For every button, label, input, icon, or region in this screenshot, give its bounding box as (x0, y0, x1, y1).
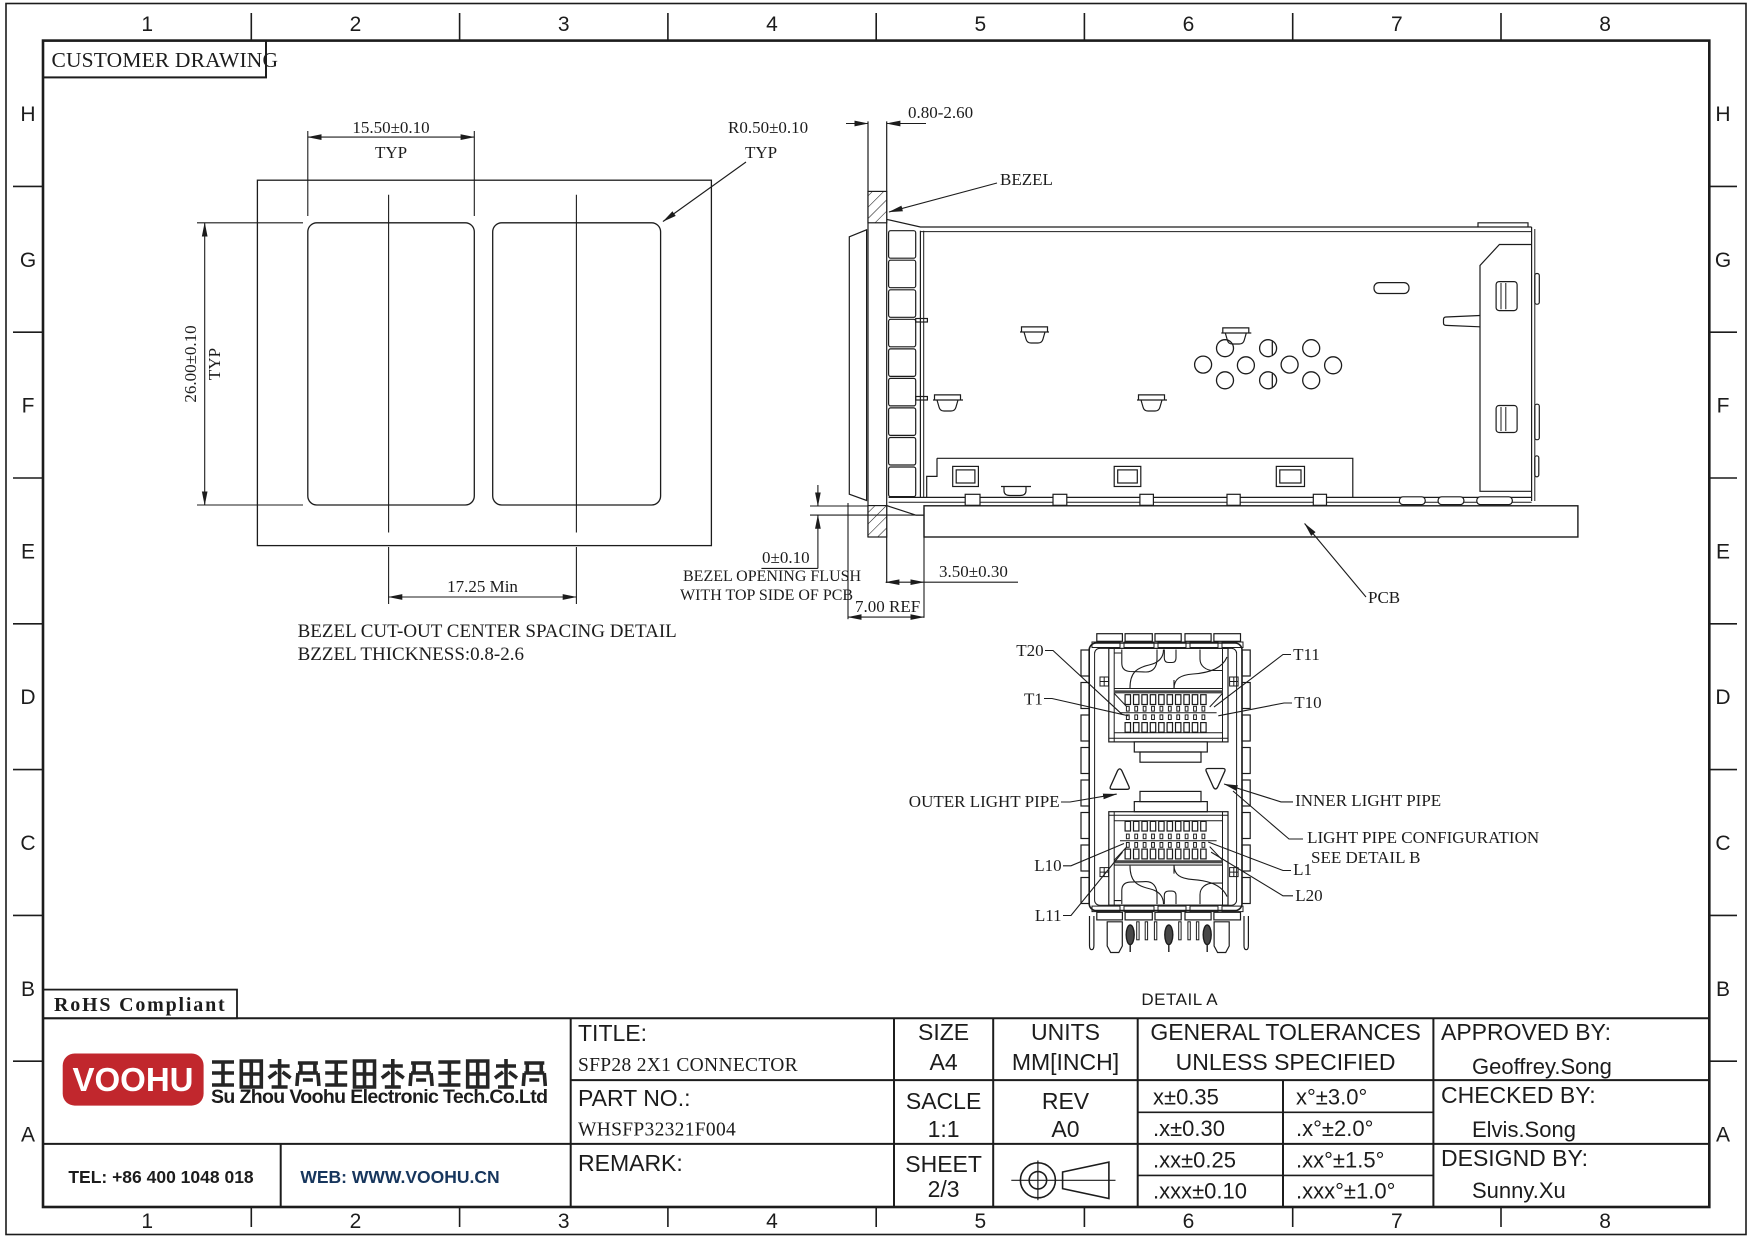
svg-text:T11: T11 (1293, 645, 1320, 664)
svg-text:D: D (20, 686, 35, 709)
svg-text:RoHS Compliant: RoHS Compliant (54, 994, 226, 1016)
svg-text:3: 3 (558, 13, 570, 36)
svg-text:26.00±0.10: 26.00±0.10 (181, 325, 200, 402)
svg-text:SIZE: SIZE (918, 1019, 969, 1045)
svg-text:BEZEL: BEZEL (1000, 170, 1053, 189)
svg-text:Sunny.Xu: Sunny.Xu (1472, 1178, 1566, 1203)
svg-text:DETAIL A: DETAIL A (1141, 990, 1218, 1009)
svg-text:3: 3 (558, 1210, 570, 1233)
svg-text:APPROVED BY:: APPROVED BY: (1441, 1019, 1611, 1045)
svg-text:A4: A4 (930, 1049, 958, 1075)
svg-text:Su Zhou Voohu Electronic Tech.: Su Zhou Voohu Electronic Tech.Co.Ltd (211, 1086, 548, 1108)
svg-text:SACLE: SACLE (906, 1088, 981, 1114)
svg-text:GENERAL TOLERANCES: GENERAL TOLERANCES (1150, 1019, 1421, 1045)
svg-text:.x±0.30: .x±0.30 (1153, 1116, 1225, 1141)
svg-text:B: B (1716, 978, 1730, 1001)
svg-text:WEB: WWW.VOOHU.CN: WEB: WWW.VOOHU.CN (300, 1167, 499, 1187)
svg-text:1: 1 (141, 1210, 153, 1233)
svg-text:3.50±0.30: 3.50±0.30 (939, 562, 1008, 581)
svg-text:.xxx°±1.0°: .xxx°±1.0° (1296, 1179, 1395, 1204)
svg-text:4: 4 (766, 1210, 778, 1233)
svg-text:2/3: 2/3 (928, 1176, 960, 1202)
svg-text:.x°±2.0°: .x°±2.0° (1296, 1116, 1373, 1141)
svg-text:TEL: +86 400 1048 018: TEL: +86 400 1048 018 (68, 1167, 254, 1187)
svg-text:UNLESS SPECIFIED: UNLESS SPECIFIED (1176, 1049, 1396, 1075)
svg-text:Elvis.Song: Elvis.Song (1472, 1117, 1576, 1142)
svg-text:OUTER LIGHT PIPE: OUTER LIGHT PIPE (909, 792, 1060, 811)
svg-text:7: 7 (1391, 13, 1403, 36)
svg-text:WITH TOP SIDE OF PCB: WITH TOP SIDE OF PCB (680, 587, 853, 604)
svg-text:E: E (1716, 540, 1730, 563)
svg-text:7.00 REF: 7.00 REF (855, 597, 920, 616)
svg-text:5: 5 (974, 1210, 986, 1233)
svg-text:T10: T10 (1294, 693, 1321, 712)
svg-text:D: D (1715, 686, 1730, 709)
svg-text:x±0.35: x±0.35 (1153, 1085, 1219, 1110)
svg-text:F: F (1717, 395, 1730, 418)
svg-text:A0: A0 (1051, 1116, 1079, 1142)
svg-text:H: H (20, 103, 35, 126)
svg-text:LIGHT PIPE CONFIGURATION: LIGHT PIPE CONFIGURATION (1307, 828, 1539, 847)
svg-text:SEE DETAIL B: SEE DETAIL B (1311, 848, 1420, 867)
svg-text:0±0.10: 0±0.10 (762, 548, 810, 567)
svg-text:1: 1 (141, 13, 153, 36)
svg-text:8: 8 (1599, 1210, 1611, 1233)
svg-text:A: A (21, 1124, 35, 1147)
svg-text:WHSFP32321F004: WHSFP32321F004 (578, 1120, 736, 1141)
svg-text:CHECKED BY:: CHECKED BY: (1441, 1082, 1596, 1108)
svg-text:15.50±0.10: 15.50±0.10 (352, 118, 429, 137)
svg-text:L11: L11 (1035, 906, 1062, 925)
svg-text:MM[INCH]: MM[INCH] (1012, 1049, 1119, 1075)
svg-text:17.25 Min: 17.25 Min (447, 577, 518, 596)
svg-text:0.80-2.60: 0.80-2.60 (908, 103, 973, 122)
svg-text:UNITS: UNITS (1031, 1019, 1100, 1045)
svg-text:A: A (1716, 1124, 1730, 1147)
svg-text:REMARK:: REMARK: (578, 1150, 683, 1176)
svg-text:R0.50±0.10: R0.50±0.10 (728, 118, 808, 137)
svg-text:C: C (1715, 832, 1730, 855)
svg-text:.xx°±1.5°: .xx°±1.5° (1296, 1148, 1384, 1173)
svg-text:REV: REV (1042, 1088, 1090, 1114)
svg-text:G: G (20, 249, 36, 272)
svg-text:CUSTOMER DRAWING: CUSTOMER DRAWING (52, 48, 279, 72)
svg-text:8: 8 (1599, 13, 1611, 36)
svg-text:x°±3.0°: x°±3.0° (1296, 1085, 1367, 1110)
svg-text:TYP: TYP (205, 348, 224, 380)
svg-text:TITLE:: TITLE: (578, 1020, 647, 1046)
svg-text:H: H (1715, 103, 1730, 126)
svg-text:PCB: PCB (1368, 588, 1400, 607)
svg-text:7: 7 (1391, 1210, 1403, 1233)
svg-text:C: C (20, 832, 35, 855)
svg-text:2: 2 (350, 13, 362, 36)
svg-text:SHEET: SHEET (905, 1151, 982, 1177)
svg-text:L1: L1 (1293, 860, 1312, 879)
svg-text:BEZEL OPENING FLUSH: BEZEL OPENING FLUSH (683, 568, 862, 585)
svg-text:TYP: TYP (375, 143, 407, 162)
svg-text:E: E (21, 540, 35, 563)
svg-text:L20: L20 (1295, 886, 1322, 905)
svg-text:DESIGND BY:: DESIGND BY: (1441, 1145, 1588, 1171)
svg-text:1:1: 1:1 (928, 1116, 960, 1142)
svg-text:.xxx±0.10: .xxx±0.10 (1153, 1179, 1247, 1204)
svg-text:BZZEL THICKNESS:0.8-2.6: BZZEL THICKNESS:0.8-2.6 (298, 644, 524, 665)
svg-text:2: 2 (350, 1210, 362, 1233)
svg-text:INNER LIGHT PIPE: INNER LIGHT PIPE (1295, 791, 1441, 810)
svg-text:.xx±0.25: .xx±0.25 (1153, 1148, 1236, 1173)
svg-text:5: 5 (974, 13, 986, 36)
svg-text:6: 6 (1183, 13, 1195, 36)
svg-text:T1: T1 (1024, 690, 1043, 709)
svg-text:G: G (1715, 249, 1731, 272)
svg-text:T20: T20 (1016, 641, 1043, 660)
svg-text:F: F (22, 395, 35, 418)
svg-text:PART NO.:: PART NO.: (578, 1085, 690, 1111)
svg-text:B: B (21, 978, 35, 1001)
svg-text:6: 6 (1183, 1210, 1195, 1233)
svg-text:VOOHU: VOOHU (72, 1061, 193, 1098)
svg-text:BEZEL CUT-OUT CENTER SPACING D: BEZEL CUT-OUT CENTER SPACING DETAIL (298, 621, 677, 642)
svg-text:L10: L10 (1034, 856, 1061, 875)
svg-text:TYP: TYP (745, 143, 777, 162)
svg-text:Geoffrey.Song: Geoffrey.Song (1472, 1054, 1612, 1079)
svg-text:SFP28 2X1 CONNECTOR: SFP28 2X1 CONNECTOR (578, 1055, 798, 1076)
svg-text:4: 4 (766, 13, 778, 36)
